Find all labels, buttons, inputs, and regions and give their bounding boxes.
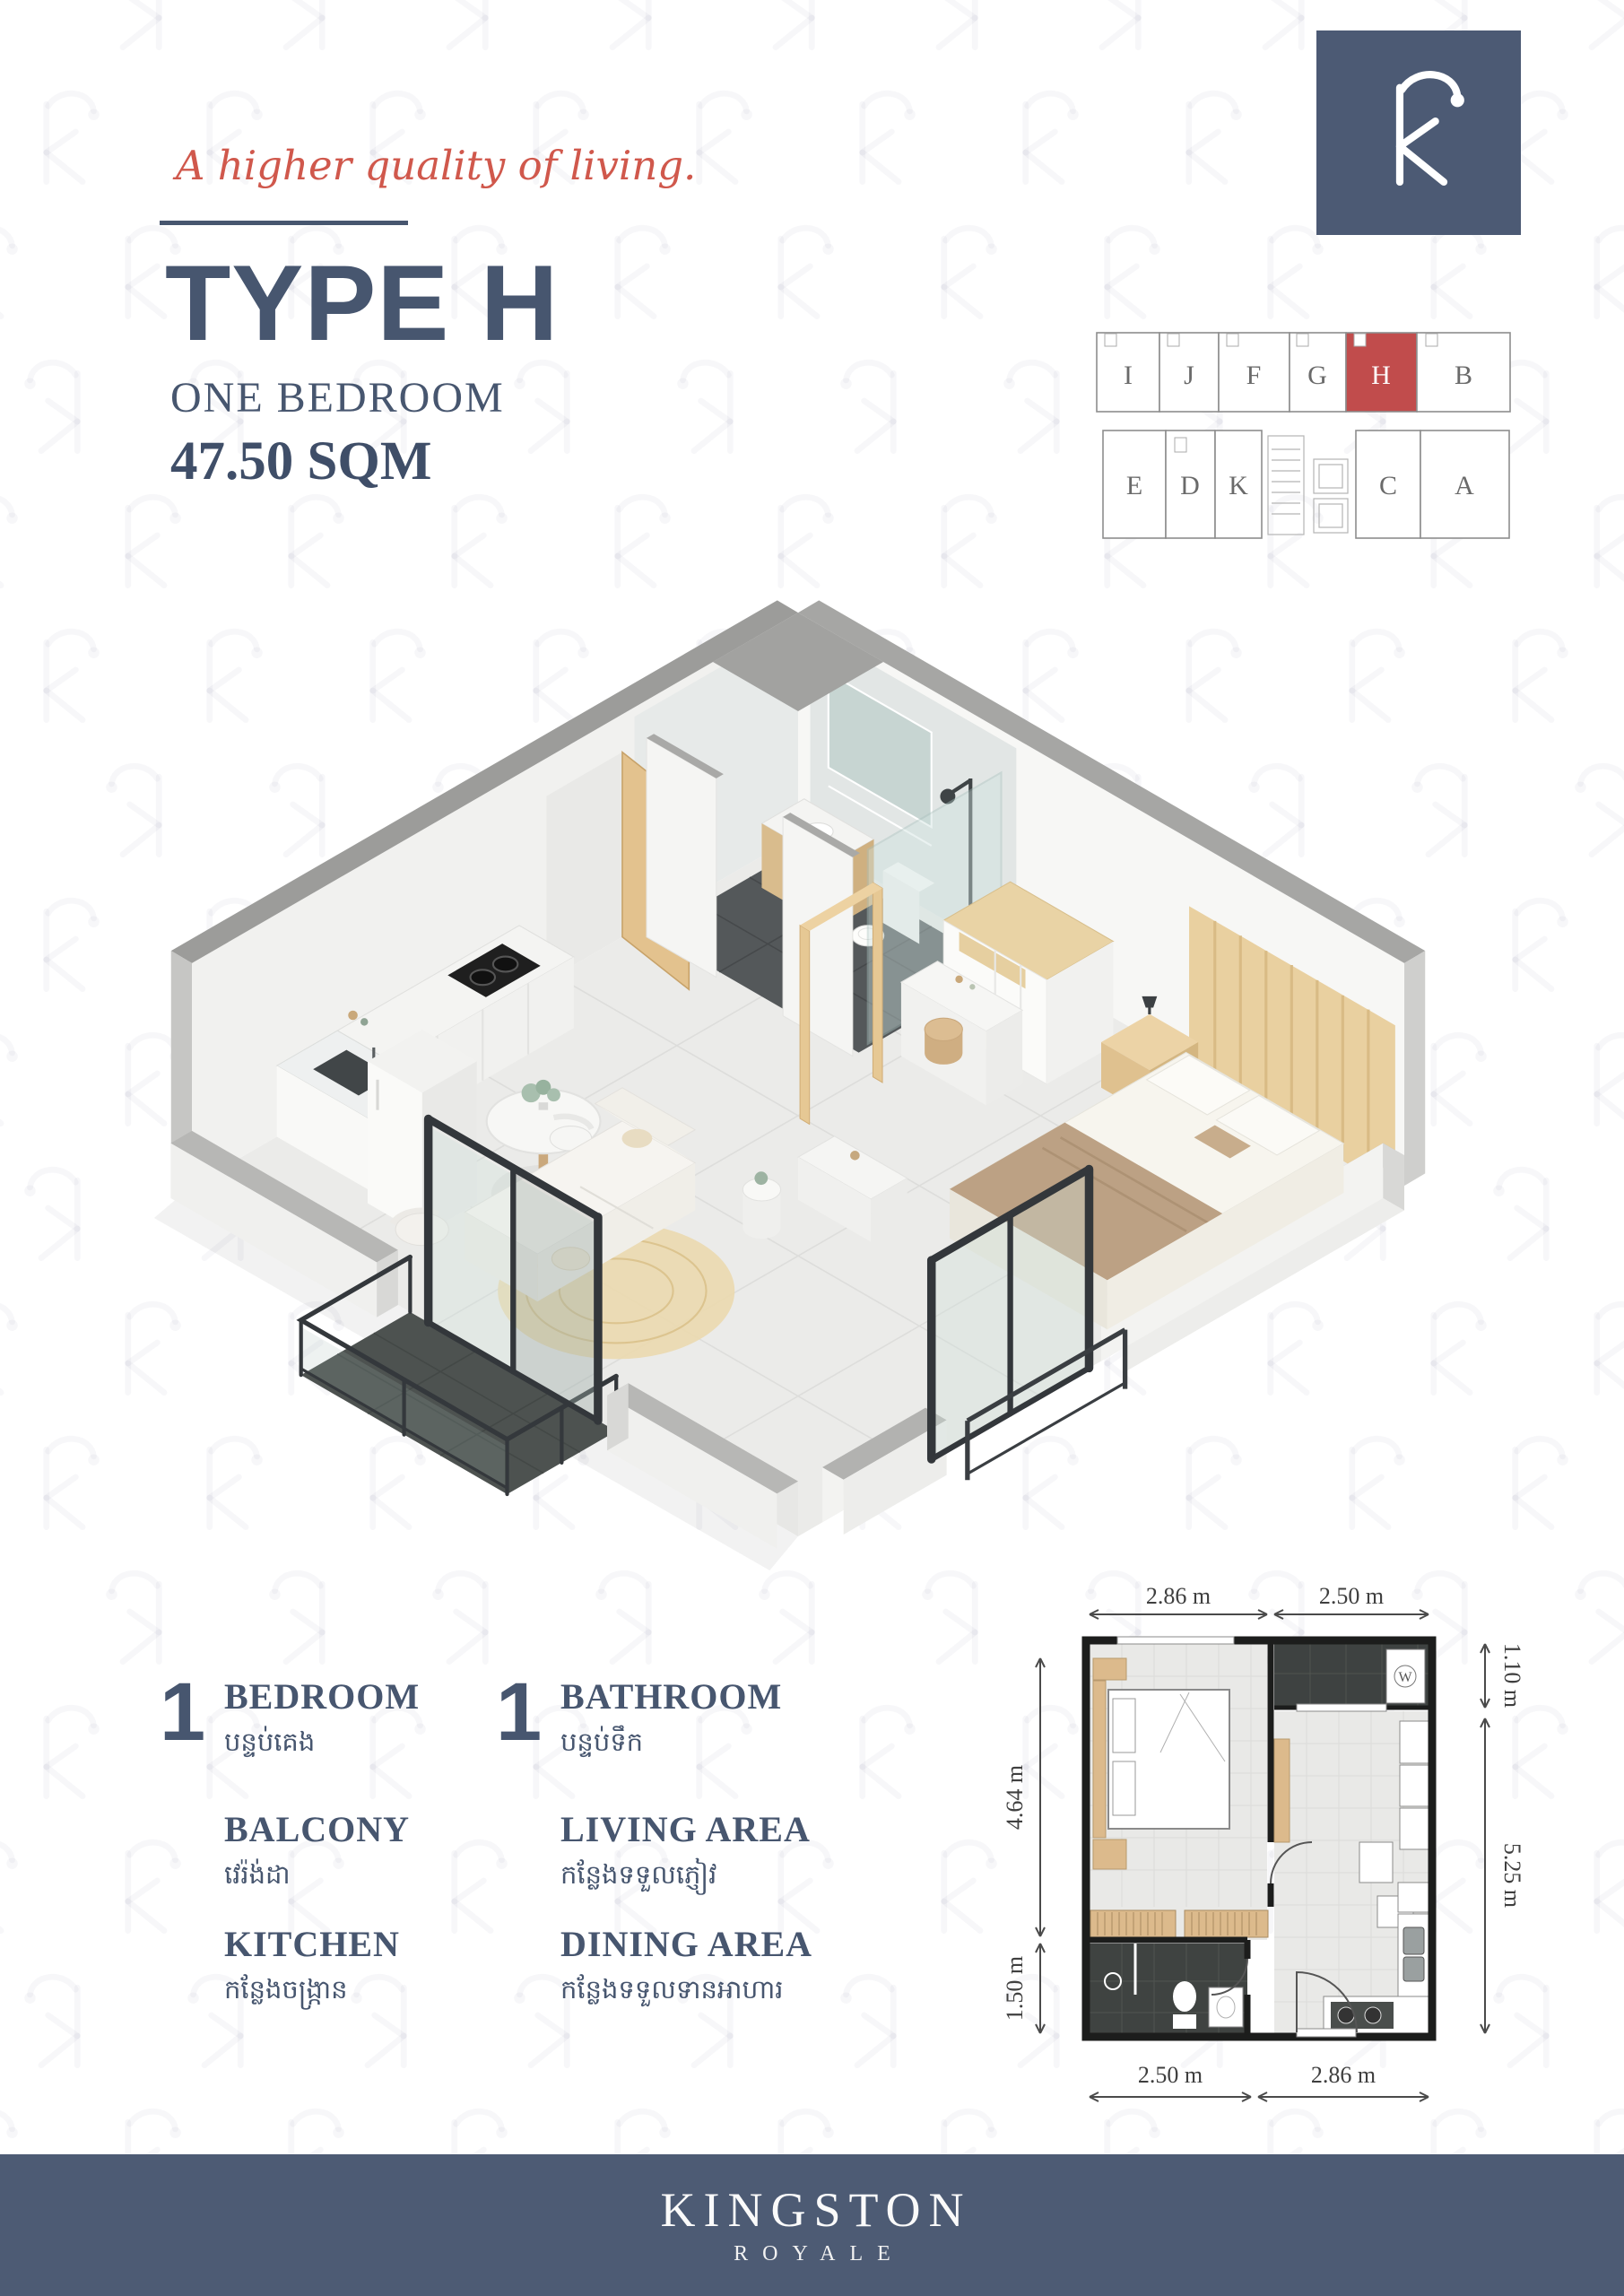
svg-text:F: F [1246,361,1262,390]
svg-text:G: G [1307,361,1327,390]
footer-bar: KINGSTON ROYALE [0,2154,1624,2296]
3d-side-table [743,1171,780,1239]
title-divider [160,221,408,225]
feature-kitchen: KITCHEN កន្លែងចង្ក្រាន [224,1926,400,2007]
elevator-core-icon [1314,459,1348,533]
feature-count: 1 [496,1679,546,1760]
dimension-label: 5.25 m [1499,1843,1521,1908]
area-label: 47.50 SQM [170,434,431,489]
feature-dining-area: DINING AREA កន្លែងទទួលទានអាហារ [560,1926,812,2007]
feature-khmer-label: កន្លែងទទួលភ្ញៀវ [560,1858,811,1892]
feature-label: KITCHEN [224,1926,400,1962]
feature-label: LIVING AREA [560,1812,811,1848]
svg-text:H: H [1371,361,1391,390]
feature-living-area: LIVING AREA កន្លែងទទួលភ្ញៀវ [560,1812,811,1892]
dimension-label: 2.50 m [1138,2062,1203,2088]
footer-brand-name: KINGSTON [652,2186,971,2234]
svg-text:C: C [1379,471,1397,500]
dimension-label: 2.86 m [1146,1583,1211,1609]
floorplate-diagram: I J F G H B E D K C A [1096,328,1515,545]
svg-text:J: J [1184,361,1194,390]
feature-bathroom: 1 BATHROOM បន្ទប់ទឹក [496,1679,782,1760]
svg-text:E: E [1126,471,1142,500]
stair-core-icon [1268,436,1304,535]
page-title: TYPE H [165,249,559,357]
page-subtitle: ONE BEDROOM [170,377,505,420]
dimension-label: 4.64 m [1002,1765,1028,1830]
feature-khmer-label: វេរ៉ង់ដា [224,1858,410,1892]
washer-label: W [1398,1670,1412,1685]
svg-text:I: I [1124,361,1133,390]
feature-khmer-label: បន្ទប់ទឹក [560,1726,782,1760]
feature-label: BATHROOM [560,1679,782,1715]
k-monogram-icon [1366,65,1472,201]
feature-count: 1 [160,1679,210,1760]
svg-text:B: B [1455,361,1472,390]
feature-label: DINING AREA [560,1926,812,1962]
feature-khmer-label: បន្ទប់គេង [224,1726,420,1760]
footer-brand-subname: ROYALE [719,2243,905,2265]
svg-text:D: D [1180,471,1200,500]
svg-text:A: A [1455,471,1474,500]
feature-balcony: BALCONY វេរ៉ង់ដា [224,1812,410,1892]
feature-label: BALCONY [224,1812,410,1848]
dimension-label: 1.10 m [1499,1643,1521,1708]
dimension-label: 1.50 m [1002,1956,1028,2021]
dimension-label: 2.86 m [1311,2062,1376,2088]
feature-khmer-label: កន្លែងចង្ក្រាន [224,1973,400,2007]
dimension-label: 2.50 m [1319,1583,1384,1609]
brand-logo [1316,30,1521,235]
feature-bedroom: 1 BEDROOM បន្ទប់គេង [160,1679,420,1760]
floorplan-3d [126,561,1471,1622]
feature-label: BEDROOM [224,1679,420,1715]
feature-khmer-label: កន្លែងទទួលទានអាហារ [560,1973,812,2007]
svg-text:K: K [1229,471,1248,500]
floorplan-3d-scene [154,600,1425,1570]
tagline: A higher quality of living. [176,142,696,189]
floorplan-2d: W [1001,1573,1521,2138]
